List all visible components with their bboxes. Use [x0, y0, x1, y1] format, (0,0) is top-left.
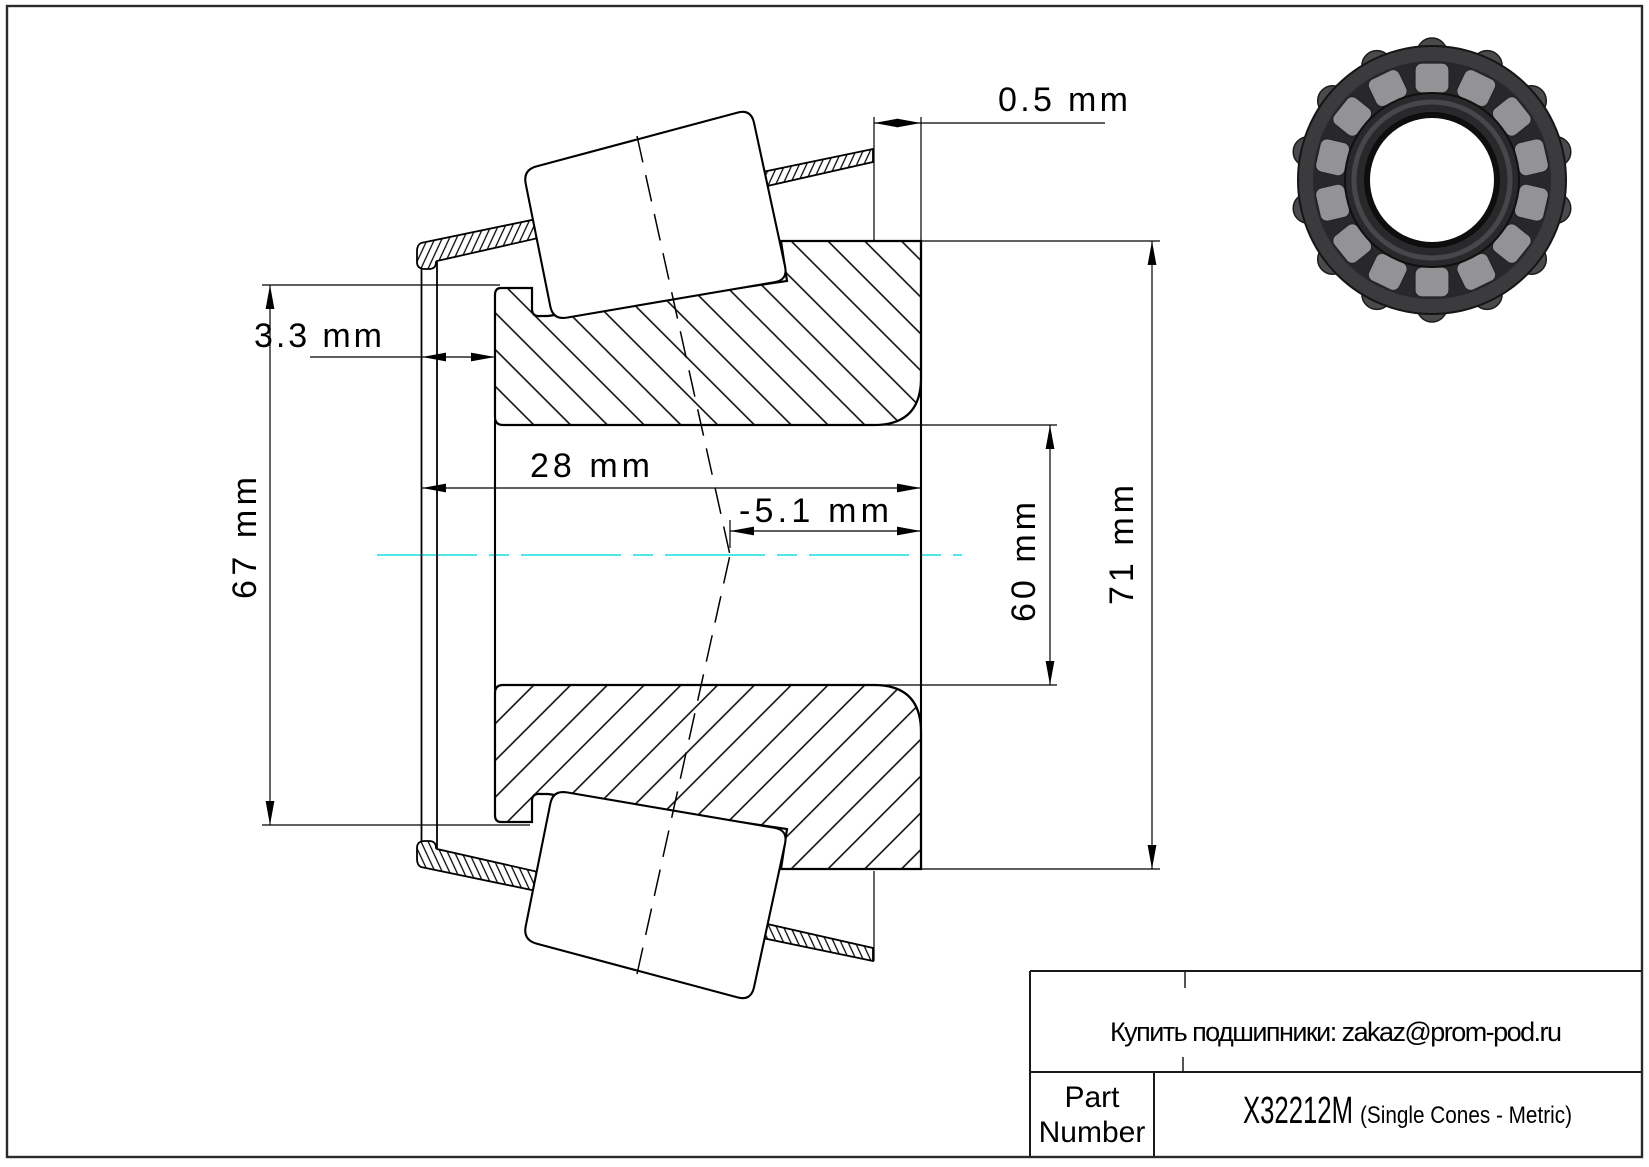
bearing-cross-section: 0.5 mm 3.3 mm 67 mm	[226, 81, 1160, 998]
part-label-line2: Number	[1039, 1116, 1146, 1149]
dim-cage-standout: 3.3 mm	[254, 317, 495, 361]
dim-width-label: 28 mm	[530, 447, 650, 485]
dim-effective-center-label: -5.1 mm	[739, 492, 889, 530]
dim-width: 28 mm	[422, 447, 921, 492]
dim-offset-label: 0.5 mm	[998, 81, 1128, 119]
dim-offset: 0.5 mm	[874, 81, 1128, 241]
part-label-line1: Part	[1064, 1081, 1120, 1114]
roller-face	[1415, 267, 1449, 297]
part-type: (Single Cones - Metric)	[1360, 1102, 1572, 1129]
dim-back-od-label: 67 mm	[226, 477, 264, 599]
dim-front-od-label: 71 mm	[1103, 485, 1141, 605]
dim-effective-center: -5.1 mm	[730, 492, 921, 548]
contact-email: Купить подшипники: zakaz@prom-pod.ru	[1110, 1017, 1562, 1047]
dim-cage-standout-label: 3.3 mm	[254, 317, 382, 355]
title-block-text: Купить подшипники: zakaz@prom-pod.ru Par…	[1039, 1017, 1572, 1149]
bearing-photo	[1293, 38, 1571, 322]
part-number: X32212M	[1243, 1090, 1353, 1132]
roller-face	[1415, 63, 1449, 93]
drawing-sheet: 0.5 mm 3.3 mm 67 mm	[0, 0, 1649, 1167]
dim-bore-label: 60 mm	[1005, 502, 1043, 622]
